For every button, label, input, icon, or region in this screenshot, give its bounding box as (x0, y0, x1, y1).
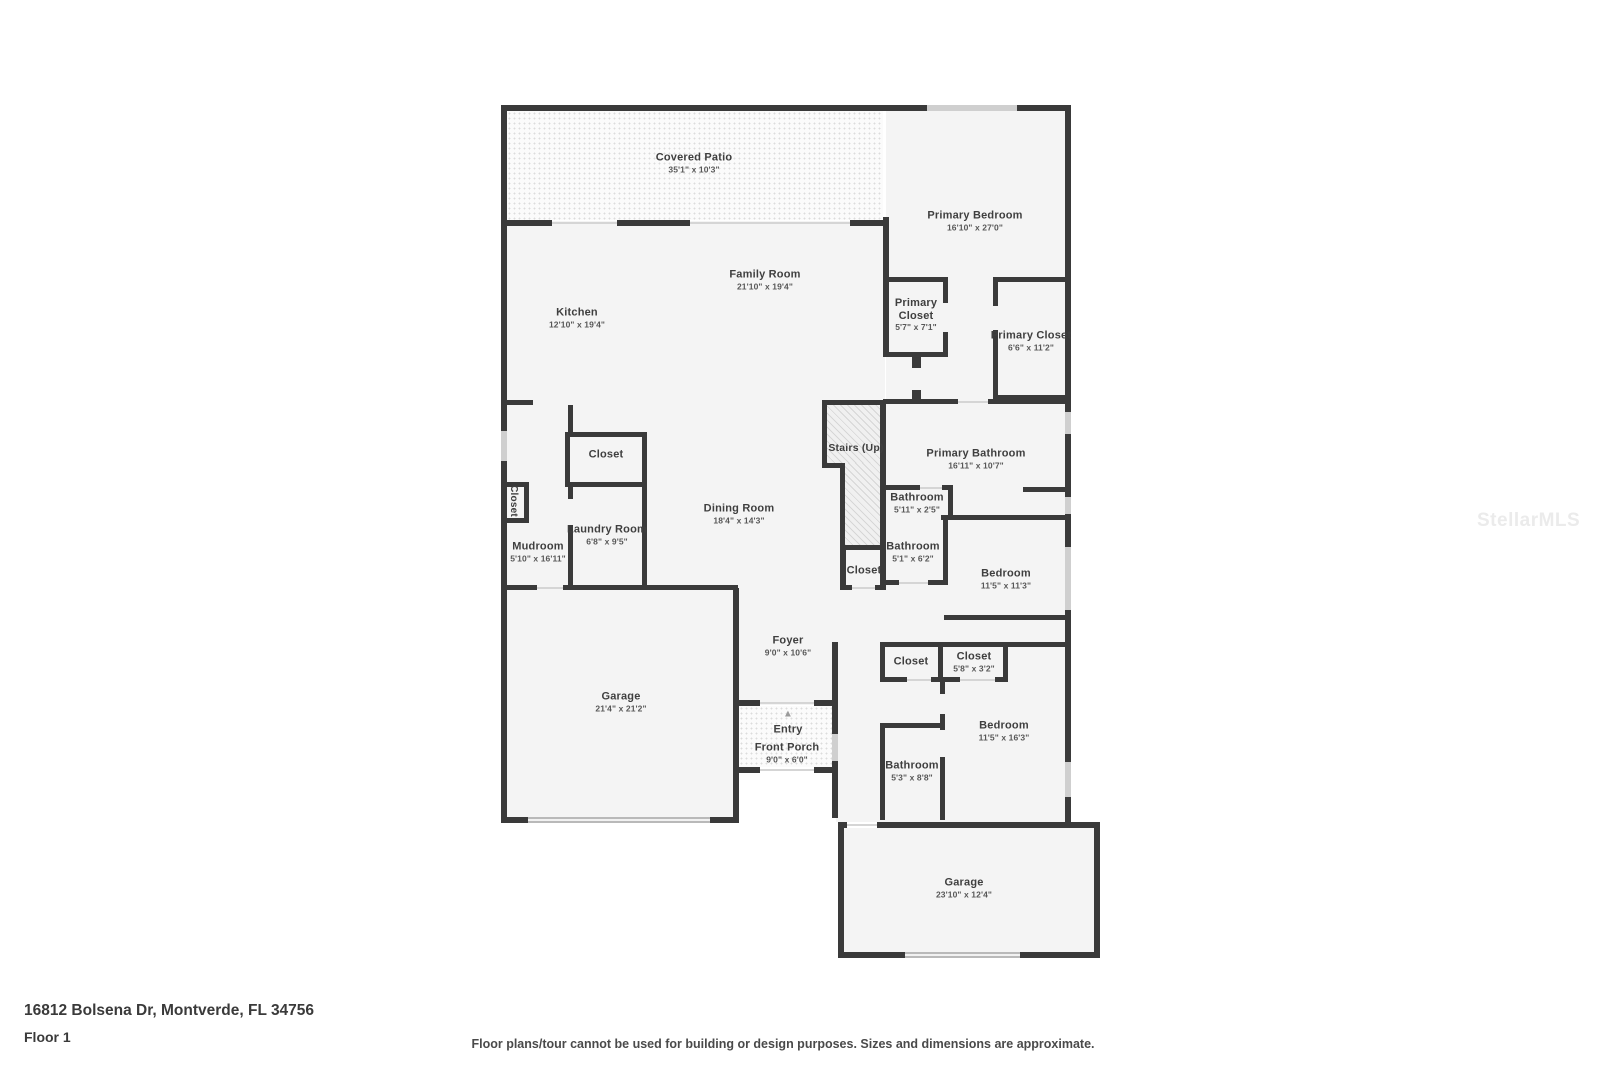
window-marker (1065, 497, 1071, 514)
garage-door-marker (905, 952, 1020, 958)
door-threshold-line (852, 587, 875, 589)
disclaimer-text: Floor plans/tour cannot be used for buil… (0, 1037, 1566, 1051)
room-name: Mudroom (512, 540, 564, 553)
room-dims: 5'11" x 2'5" (894, 505, 940, 515)
wall-segment (501, 220, 552, 226)
wall-segment (993, 282, 998, 306)
room-label-primary-bathroom: Primary Bathroom 16'11" x 10'7" (926, 447, 1025, 470)
wall-segment (943, 518, 948, 585)
room-name: Dining Room (704, 502, 775, 515)
room-dims: 12'10" x 19'4" (549, 320, 605, 330)
wall-segment (940, 682, 945, 694)
door-threshold-line (690, 222, 850, 224)
wall-segment (565, 432, 570, 487)
room-label-mudroom: Mudroom 5'10" x 16'11" (510, 540, 566, 563)
wall-segment (885, 485, 920, 490)
room-label-laundry-room: Laundry Room 6'8" x 9'5" (567, 523, 647, 546)
wall-segment (912, 357, 921, 368)
door-threshold-line (958, 401, 988, 403)
window-marker (927, 105, 1017, 111)
property-address: 16812 Bolsena Dr, Montverde, FL 34756 (24, 1002, 314, 1020)
room-name: Foyer (773, 634, 804, 647)
room-floor-area (886, 108, 1067, 280)
wall-segment (883, 217, 889, 357)
wall-segment (880, 404, 886, 590)
wall-segment (1023, 487, 1071, 492)
wall-segment (501, 400, 533, 405)
wall-segment (883, 277, 948, 282)
wall-segment (501, 518, 529, 523)
room-name: Family Room (729, 268, 800, 281)
room-label-foyer: Foyer 9'0" x 10'6" (765, 634, 811, 657)
door-threshold-line (760, 702, 814, 704)
room-dims: 16'10" x 27'0" (947, 223, 1003, 233)
wall-segment (501, 105, 889, 111)
room-label-bedroom-1: Bedroom 11'5" x 11'3" (981, 567, 1031, 590)
room-name: Entry (773, 724, 802, 737)
room-dims: 5'8" x 3'2" (953, 664, 995, 674)
room-dims: 11'5" x 16'3" (979, 733, 1030, 743)
room-dims: 6'6" x 11'2" (1008, 343, 1054, 353)
wall-segment (733, 700, 760, 706)
room-name: Front Porch (755, 741, 820, 754)
window-marker (1065, 762, 1071, 797)
stairs-hatch-area (827, 405, 880, 463)
wall-segment (568, 405, 573, 432)
floorplan-page: Covered Patio 35'1" x 10'3" Family Room … (0, 0, 1600, 1066)
door-threshold-line (907, 679, 931, 681)
room-label-dining-room: Dining Room 18'4" x 14'3" (704, 502, 775, 525)
room-dims: 5'7" x 7'1" (895, 323, 937, 333)
wall-segment (565, 432, 647, 437)
wall-segment (941, 515, 1071, 520)
room-label-closet-nook: Closet (507, 485, 519, 517)
room-dims: 9'0" x 10'6" (765, 648, 811, 658)
wall-segment (1003, 642, 1008, 682)
door-threshold-line (552, 222, 617, 224)
wall-segment (944, 615, 1071, 620)
wall-segment (1065, 105, 1071, 822)
wall-segment (993, 277, 1071, 282)
door-threshold-line (960, 679, 995, 681)
room-dims: 18'4" x 14'3" (713, 516, 764, 526)
wall-segment (875, 585, 885, 590)
wall-segment (885, 580, 899, 585)
room-label-closet-3: Closet (894, 656, 929, 669)
room-name: Bedroom (981, 567, 1031, 580)
wall-segment (617, 220, 690, 226)
room-name: Bathroom (885, 759, 939, 772)
room-name: Kitchen (556, 306, 598, 319)
wall-segment (940, 757, 945, 820)
room-label-garage-1: Garage 21'4" x 21'2" (595, 690, 646, 713)
room-label-covered-patio: Covered Patio 35'1" x 10'3" (656, 151, 733, 174)
door-threshold-line (537, 587, 563, 589)
room-name: Bathroom (886, 540, 940, 553)
wall-segment (840, 463, 845, 550)
window-marker (501, 431, 507, 461)
room-label-primary-closet-2: Primary Closet 6'6" x 11'2" (991, 329, 1071, 352)
room-dims: 35'1" x 10'3" (668, 165, 719, 175)
room-name: Bathroom (890, 491, 944, 504)
room-label-closet-dining: Closet (589, 449, 624, 462)
room-name: Primary Closet (991, 329, 1071, 342)
room-name: Garage (944, 876, 983, 889)
room-name: Closet (507, 485, 519, 517)
room-name: Stairs (Up) (828, 442, 883, 454)
room-label-bathroom-2: Bathroom 5'1" x 6'2" (886, 540, 940, 563)
wall-segment (840, 585, 852, 590)
window-marker (832, 734, 838, 761)
wall-segment (1094, 822, 1100, 958)
stairs-hatch-area (845, 463, 880, 545)
room-label-stairs: Stairs (Up) (828, 442, 883, 454)
wall-segment (840, 545, 846, 590)
room-name: Closet (894, 656, 929, 669)
door-threshold-line (847, 824, 877, 826)
room-name: Closet (957, 650, 992, 663)
garage-door-marker (528, 817, 710, 823)
wall-segment (883, 399, 958, 404)
room-name: Primary Bathroom (926, 447, 1025, 460)
room-label-primary-bedroom: Primary Bedroom 16'10" x 27'0" (927, 209, 1022, 232)
room-dims: 9'0" x 6'0" (766, 755, 808, 765)
room-label-closet-4: Closet 5'8" x 3'2" (953, 650, 995, 673)
wall-segment (524, 482, 529, 523)
wall-segment (642, 432, 647, 590)
room-name: Closet (589, 449, 624, 462)
wall-segment (565, 482, 647, 487)
wall-segment (838, 822, 1100, 828)
room-dims: 16'11" x 10'7" (948, 461, 1004, 471)
room-label-garage-2: Garage 23'10" x 12'4" (936, 876, 992, 899)
room-label-front-porch: Front Porch 9'0" x 6'0" (755, 741, 820, 764)
door-threshold-line (760, 769, 814, 771)
wall-segment (838, 822, 844, 958)
room-label-entry: Entry (773, 724, 802, 737)
wall-segment (940, 714, 945, 730)
room-label-bathroom-1: Bathroom 5'11" x 2'5" (890, 491, 944, 514)
room-name: Covered Patio (656, 151, 733, 164)
room-label-bedroom-2: Bedroom 11'5" x 16'3" (979, 719, 1030, 742)
room-dims: 21'4" x 21'2" (595, 704, 646, 714)
room-label-bathroom-3: Bathroom 5'3" x 8'8" (885, 759, 939, 782)
wall-segment (563, 585, 738, 590)
room-name: Closet (847, 565, 882, 578)
room-name: Primary Closet (886, 297, 946, 322)
room-dims: 6'8" x 9'5" (586, 537, 628, 547)
room-dims: 11'5" x 11'3" (981, 581, 1031, 591)
room-name: Garage (601, 690, 640, 703)
wall-segment (880, 677, 907, 682)
wall-segment (733, 767, 760, 773)
wall-segment (938, 642, 943, 682)
room-dims: 21'10" x 19'4" (737, 282, 793, 292)
wall-segment (822, 400, 885, 405)
window-marker (1065, 412, 1071, 434)
wall-segment (501, 585, 537, 590)
stellar-mls-watermark: StellarMLS (1477, 510, 1580, 532)
wall-segment (846, 545, 885, 550)
room-label-closet-mid: Closet (847, 565, 882, 578)
room-label-kitchen: Kitchen 12'10" x 19'4" (549, 306, 605, 329)
wall-segment (988, 399, 1071, 404)
room-name: Bedroom (979, 719, 1029, 732)
wall-segment (995, 677, 1008, 682)
wall-segment (501, 105, 507, 823)
wall-segment (928, 580, 948, 585)
wall-segment (568, 487, 573, 499)
wall-segment (822, 400, 827, 468)
room-name: Laundry Room (567, 523, 647, 536)
wall-segment (880, 642, 1071, 647)
room-dims: 5'1" x 6'2" (892, 554, 934, 564)
wall-segment (832, 773, 838, 818)
door-threshold-line (920, 487, 942, 489)
wall-segment (880, 723, 940, 728)
room-label-family-room: Family Room 21'10" x 19'4" (729, 268, 800, 291)
room-dims: 5'10" x 16'11" (510, 554, 566, 564)
room-dims: 23'10" x 12'4" (936, 890, 992, 900)
window-marker (1065, 547, 1071, 610)
room-label-primary-closet-1: Primary Closet 5'7" x 7'1" (886, 297, 946, 333)
door-threshold-line (899, 582, 928, 584)
wall-segment (880, 642, 885, 682)
room-name: Primary Bedroom (927, 209, 1022, 222)
room-dims: 5'3" x 8'8" (891, 773, 933, 783)
entry-arrow-icon: ▲ (783, 709, 793, 720)
